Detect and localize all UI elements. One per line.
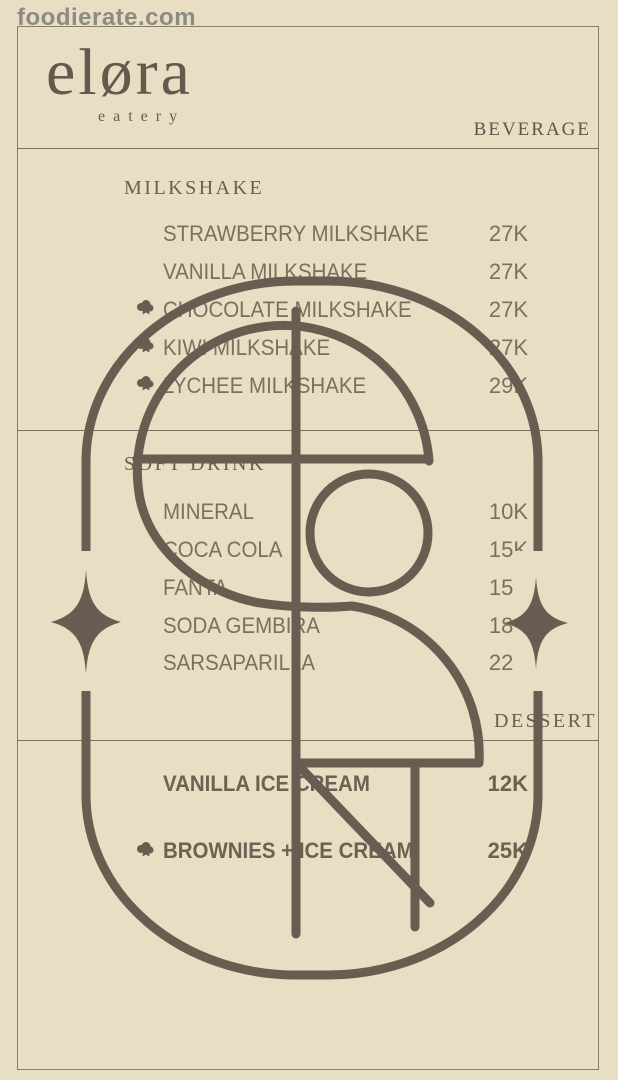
item-name: KIWI MILKSHAKE [163, 334, 330, 361]
menu-row: STRAWBERRY MILKSHAKE 27K [163, 220, 528, 247]
item-price: 27K [489, 334, 528, 361]
item-price: 12K [488, 770, 528, 797]
item-price: 15K [489, 536, 528, 563]
item-name: LYCHEE MILKSHAKE [163, 372, 366, 399]
item-price: 15K [489, 574, 528, 601]
item-name: VANILLA MILKSHAKE [163, 258, 367, 285]
header-divider [17, 148, 598, 149]
signature-icon [132, 841, 158, 861]
menu-row: VANILLA MILKSHAKE 27K [163, 258, 528, 285]
signature-icon [132, 375, 158, 395]
item-price: 29K [489, 372, 528, 399]
item-price: 25K [488, 837, 528, 864]
item-price: 10K [489, 498, 528, 525]
watermark: foodierate.com [17, 4, 196, 32]
section-title-milkshake: MILKSHAKE [124, 177, 264, 200]
menu-row: SODA GEMBIRA 18K [163, 612, 528, 639]
menu-row: MINERAL 10K [163, 498, 528, 525]
menu-row: SARSAPARILLA 22K [163, 649, 528, 676]
item-name: BROWNIES + ICE CREAM [163, 837, 414, 864]
item-name: VANILLA ICE CREAM [163, 770, 370, 797]
item-price: 22K [489, 649, 528, 676]
menu-row: LYCHEE MILKSHAKE 29K [163, 372, 528, 399]
item-price: 27K [489, 220, 528, 247]
menu-row: VANILLA ICE CREAM 12K [163, 770, 528, 797]
menu-row: FANTA 15K [163, 574, 528, 601]
item-name: CHOCOLATE MILKSHAKE [163, 296, 412, 323]
menu-row: CHOCOLATE MILKSHAKE 27K [163, 296, 528, 323]
menu-row: BROWNIES + ICE CREAM 25K [163, 837, 528, 864]
signature-icon [132, 299, 158, 319]
section-divider [17, 430, 598, 431]
section-divider [17, 740, 598, 741]
section-title-dessert: DESSERT [494, 710, 597, 733]
item-price: 27K [489, 296, 528, 323]
section-title-soft-drink: SOFT DRINK [124, 453, 266, 476]
brand-tagline: eatery [98, 108, 185, 126]
signature-icon [132, 337, 158, 357]
item-name: SARSAPARILLA [163, 649, 315, 676]
page-title: BEVERAGE [474, 119, 591, 141]
item-name: STRAWBERRY MILKSHAKE [163, 220, 429, 247]
menu-page: eløra eatery BEVERAGE MILKSHAKE STRAWBER… [0, 0, 618, 1080]
item-name: SODA GEMBIRA [163, 612, 320, 639]
menu-row: COCA COLA 15K [163, 536, 528, 563]
item-price: 18K [489, 612, 528, 639]
menu-row: KIWI MILKSHAKE 27K [163, 334, 528, 361]
item-name: MINERAL [163, 498, 254, 525]
item-name: FANTA [163, 574, 227, 601]
item-price: 27K [489, 258, 528, 285]
item-name: COCA COLA [163, 536, 282, 563]
brand-logo: eløra [46, 40, 193, 106]
